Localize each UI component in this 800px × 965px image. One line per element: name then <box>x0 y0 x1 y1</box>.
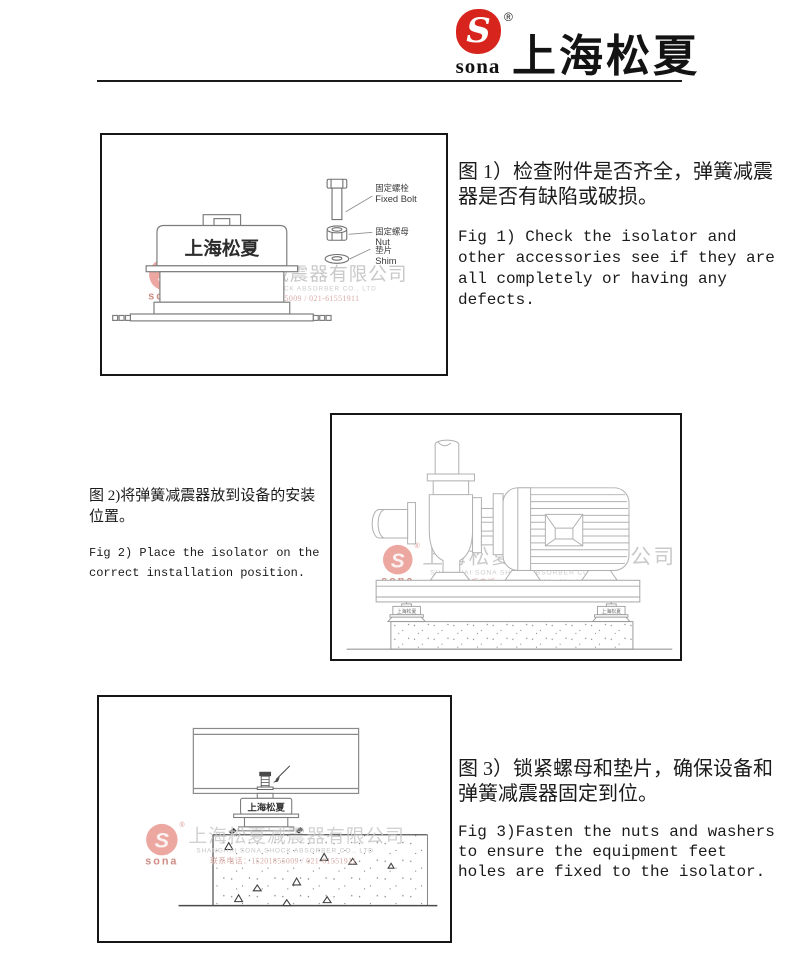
motor-junction-box <box>545 514 582 545</box>
watermark-company-zh: 上海松夏减震器有限公司 <box>188 827 404 848</box>
figure2-caption-zh: 图 2)将弹簧减震器放到设备的安装 位置。 <box>89 486 337 528</box>
figure3-box: 上海松夏 <box>97 695 452 943</box>
figure1-box: S ® sona 上海松夏减震器有限公司 SHANGHAI SONA SHOCK… <box>100 133 448 376</box>
figure3-caption-en: Fig 3)Fasten the nuts and washers to ens… <box>458 822 798 882</box>
part-label-bolt-en: Fixed Bolt <box>375 194 417 204</box>
sona-logo-icon: S <box>456 9 501 54</box>
brand-title: 上海松夏 <box>512 20 700 84</box>
part-label-shim-zh: 垫片 <box>375 245 392 255</box>
shim-drawing <box>325 255 349 264</box>
page: S ® sona 上海松夏 S ® sona 上海松夏减震器有限公司 SHANG… <box>0 0 800 965</box>
part-label-bolt-zh: 固定螺栓 <box>375 183 409 193</box>
figure2-caption: 图 2)将弹簧减震器放到设备的安装 位置。 Fig 2) Place the i… <box>89 486 337 583</box>
watermark-logo-s: S <box>155 828 170 853</box>
fixed-bolt-drawing <box>327 179 347 219</box>
base-frame-drawing <box>376 580 640 602</box>
isolator-right-label: 上海松夏 <box>601 608 621 615</box>
foundation-drawing <box>347 622 673 650</box>
figure1-caption: 图 1）检查附件是否齐全，弹簧减震 器是否有缺陷或破损。 Fig 1) Chec… <box>458 160 796 311</box>
watermark-logo-s: S <box>391 550 405 573</box>
figure2-box: S ® sona 上海松夏减震器有限公司 SHANGHAI SONA SHOCK… <box>330 413 682 661</box>
watermark-contact: 联系电话：15201855009 / 021-61551911 <box>210 855 356 865</box>
figure3-drawing: 上海松夏 <box>99 697 450 941</box>
motor-drawing <box>503 488 629 580</box>
leader-lines <box>346 196 373 259</box>
watermark-reg: ® <box>180 821 185 829</box>
watermark-company-en: SHANGHAI SONA SHOCK ABSORBER CO., LTD <box>196 847 374 854</box>
nut-drawing <box>327 226 347 240</box>
watermark-sona: sona <box>145 855 178 867</box>
figure3-caption: 图 3）锁紧螺母和垫片，确保设备和 弹簧减震器固定到位。 Fig 3)Faste… <box>458 757 798 882</box>
figure2-caption-en: Fig 2) Place the isolator on the correct… <box>89 543 337 583</box>
coupling-drawing <box>473 494 504 555</box>
figure3-caption-zh: 图 3）锁紧螺母和垫片，确保设备和 弹簧减震器固定到位。 <box>458 757 798 807</box>
figure1-caption-en: Fig 1) Check the isolator and other acce… <box>458 227 796 311</box>
isolator-device-label: 上海松夏 <box>247 802 285 814</box>
part-label-nut-zh: 固定螺母 <box>375 226 408 236</box>
isolator-left-label: 上海松夏 <box>397 608 417 615</box>
figure2-drawing: S ® sona 上海松夏减震器有限公司 SHANGHAI SONA SHOCK… <box>332 415 680 659</box>
header-divider <box>97 80 682 82</box>
isolator-device-label: 上海松夏 <box>185 238 260 260</box>
sona-logo-text: sona <box>448 54 508 79</box>
figure1-drawing: S ® sona 上海松夏减震器有限公司 SHANGHAI SONA SHOCK… <box>102 135 446 374</box>
figure1-caption-zh: 图 1）检查附件是否齐全，弹簧减震 器是否有缺陷或破损。 <box>458 160 796 210</box>
sona-logo-s: S <box>466 14 491 48</box>
part-label-shim-en: Shim <box>375 256 396 266</box>
equipment-beam-drawing <box>193 728 358 793</box>
